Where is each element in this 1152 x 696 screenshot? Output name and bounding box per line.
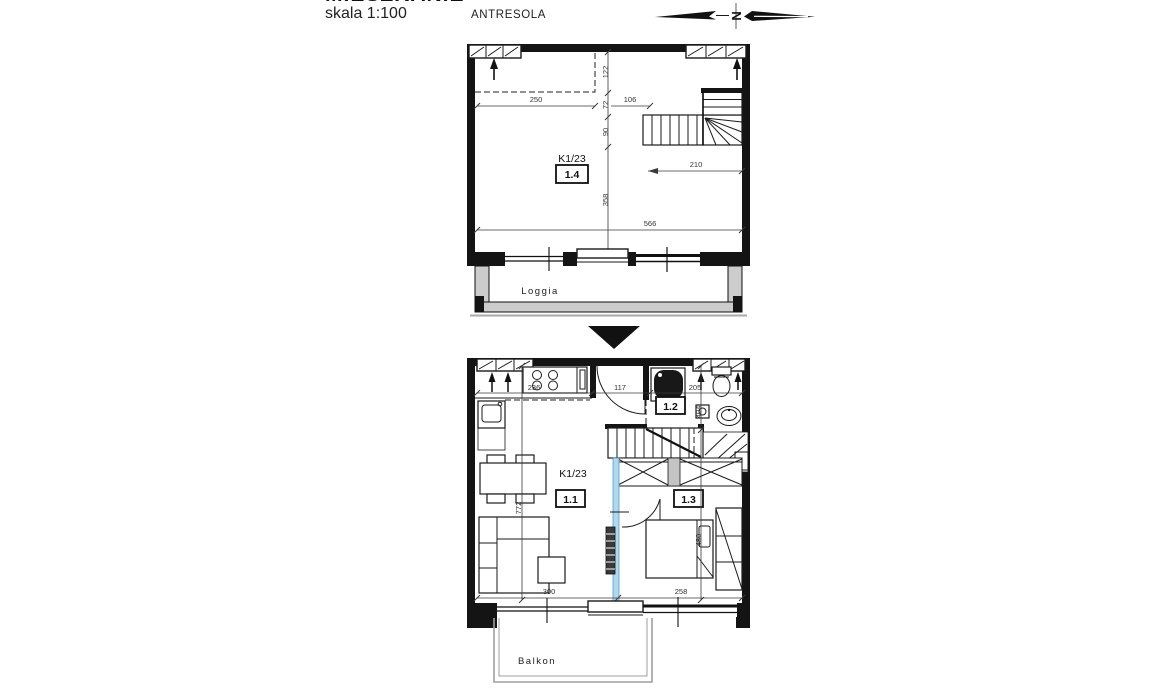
dim-480-label: 480 [694,534,703,547]
window-icon [643,597,737,627]
kitchen-counter [475,398,592,450]
dim-250-label: 250 [530,95,543,104]
window-icon [505,247,563,271]
north-letter: N [729,11,744,20]
up-arrow-icon [490,58,498,80]
dim-106: 106 [611,95,653,109]
up-arrow-icon [735,372,742,390]
dim-300-label: 300 [543,587,556,596]
stairs-void-braced [618,458,742,486]
dim-566-label: 566 [644,219,657,228]
lower-unit-label: K1/23 [559,468,587,480]
dim-106-label: 106 [624,95,637,104]
dim-205-label: 205 [689,383,702,392]
dim-h3: 90 [601,128,610,136]
down-arrow-icon [588,326,640,349]
room-number-1-4: 1.4 [565,169,580,181]
washbasin-icon [717,407,741,426]
room-badge-1-3: 1.3 [674,490,703,507]
dim-250: 250 [474,95,598,109]
dim-room-depth: 358 [601,194,610,207]
window-icon [497,598,588,623]
dim-772-label: 772 [514,502,523,515]
upper-unit-label: K1/23 [558,153,586,165]
window-icon [636,247,700,272]
stairs-lower [608,428,703,458]
up-arrow-icon [489,372,496,392]
dining-table [480,455,546,503]
lower-top-dimension: 236 117 205 [474,383,745,396]
dim-566: 566 [474,219,745,233]
toilet-icon [712,367,731,397]
room-number-1-2: 1.2 [663,401,678,413]
up-arrow-icon [733,58,741,80]
balcony-door-sill [577,249,628,262]
dim-236-label: 236 [528,383,541,392]
room-badge-1-1: 1.1 [556,490,585,507]
dim-h2: 72 [601,101,610,109]
skylight-window-icon [469,45,521,58]
coffee-table [538,557,565,583]
room-badge-1-2: 1.2 [656,397,685,414]
north-arrow-icon: N [655,3,815,29]
stairs-upper [643,88,742,145]
room-badge-1-4: 1.4 [556,165,588,183]
wardrobe [716,508,742,590]
room-number-1-1: 1.1 [563,494,578,506]
balcony-door-sill [588,601,643,615]
bed [646,520,713,578]
up-arrow-icon [505,372,512,392]
dim-210-label: 210 [690,160,703,169]
upper-vertical-dimension: 122 72 90 358 [601,49,611,255]
dim-258-label: 258 [675,587,688,596]
upper-plan: 122 72 90 358 250 106 210 [467,44,750,316]
dim-h1: 122 [601,66,610,79]
floorplan-page: MIESZKANIE skala 1:100 ANTRESOLA N [0,0,1152,696]
dim-210: 210 [648,160,745,174]
radiator-icon [606,527,615,574]
loggia-label: Loggia [521,286,559,297]
dim-404-label: 404 [694,406,703,419]
loggia: Loggia [470,266,747,316]
balcony: Balkon [494,618,652,682]
room-number-1-3: 1.3 [681,494,696,506]
lower-plan: 1.2 236 117 205 [467,358,750,682]
shower-icon [651,368,685,401]
balcony-label: Balkon [518,656,556,667]
skylight-window-icon [686,45,746,58]
dim-117-label: 117 [614,383,626,392]
